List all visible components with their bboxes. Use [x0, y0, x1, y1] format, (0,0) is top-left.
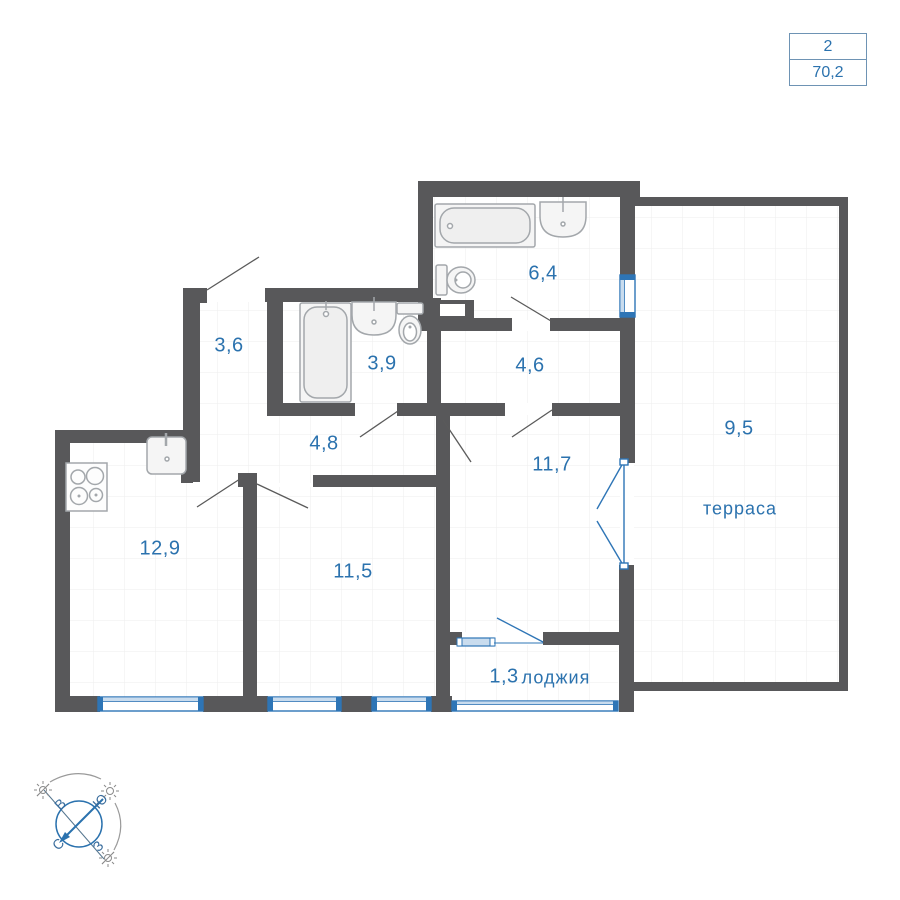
room-floor-terrace — [634, 206, 839, 682]
unit-total-area: 70,2 — [790, 59, 866, 85]
toilet-icon — [397, 303, 423, 344]
room-label-hallway-3-6: 3,6 — [214, 335, 243, 358]
room-label-terrace-name: терраса — [703, 499, 777, 520]
kitchen-sink-icon — [147, 433, 186, 474]
room-label-bathroom-3-9: 3,9 — [367, 353, 396, 376]
window-icon — [457, 638, 495, 646]
compass-west-label: З — [89, 837, 106, 854]
room-label-loggia-area: 1,3 — [489, 666, 518, 689]
sink-icon — [352, 297, 396, 335]
room-label-hall-4-6: 4,6 — [515, 355, 544, 378]
room-floor-room-11-5 — [257, 487, 435, 696]
room-label-bathroom-6-4: 6,4 — [528, 263, 557, 286]
floor-plan-page: В Ю С З 3,6 3,9 6,4 4,6 4,8 11,7 12,9 11… — [0, 0, 900, 900]
room-label-kitchen-12-9: 12,9 — [140, 538, 181, 561]
unit-rooms-count: 2 — [790, 34, 866, 59]
room-floor-room-11-7 — [450, 415, 620, 632]
compass-east-label: В — [51, 795, 69, 813]
compass-rose: В Ю С З — [34, 774, 121, 867]
room-label-room-11-7: 11,7 — [532, 454, 571, 477]
stove-icon — [66, 463, 107, 511]
room-label-loggia-name: лоджия — [522, 668, 591, 689]
window-icon — [452, 701, 618, 711]
bathtub-icon — [300, 301, 351, 402]
floor-plan-drawing: В Ю С З — [0, 0, 900, 900]
room-label-terrace-area: 9,5 — [724, 418, 753, 441]
sink-icon — [540, 197, 586, 237]
bathtub-icon — [435, 204, 535, 247]
window-icon — [268, 697, 341, 711]
window-icon — [98, 697, 203, 711]
window-icon — [620, 275, 635, 317]
unit-summary-box: 2 70,2 — [789, 33, 867, 86]
room-label-corridor-4-8: 4,8 — [309, 433, 338, 456]
toilet-icon — [436, 265, 475, 295]
door-swing — [207, 257, 259, 290]
room-label-room-11-5: 11,5 — [333, 561, 372, 584]
window-icon — [372, 697, 431, 711]
